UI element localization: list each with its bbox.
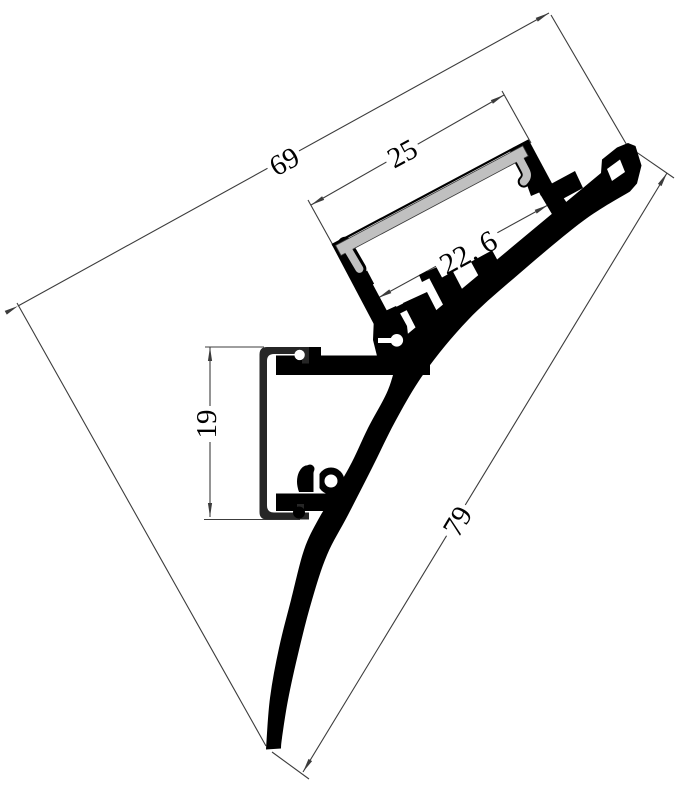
svg-text:19: 19 <box>191 410 223 439</box>
